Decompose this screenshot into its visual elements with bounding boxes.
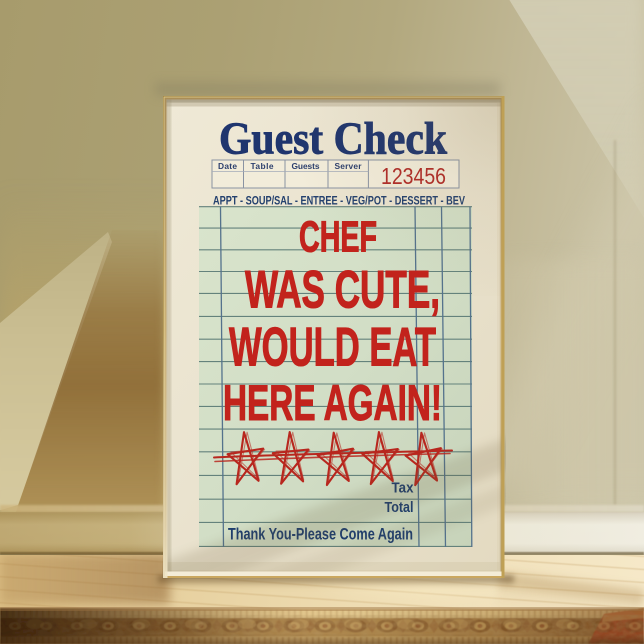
svg-text:HERE AGAIN!: HERE AGAIN! (223, 375, 442, 431)
svg-text:WOULD EAT: WOULD EAT (229, 316, 436, 378)
svg-text:Table: Table (251, 161, 274, 171)
svg-text:Date: Date (218, 161, 237, 171)
